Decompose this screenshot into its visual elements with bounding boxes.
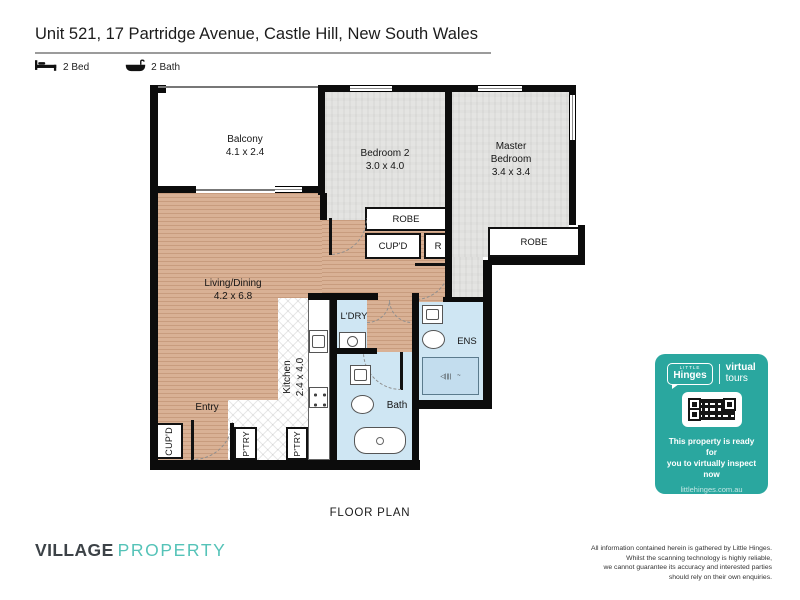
wall [150, 460, 420, 470]
cupboard-label: CUP'D [379, 241, 408, 252]
balcony-label: Balcony 4.1 x 2.4 [185, 133, 305, 159]
wall [392, 85, 478, 92]
balcony-railing [158, 86, 320, 88]
little-hinges-logo: LITTLE Hinges virtual tours [667, 363, 755, 385]
pantry-1: P'TRY [234, 427, 257, 460]
qr-finder [688, 408, 701, 421]
room-name: Balcony [185, 133, 305, 146]
bed-count-label: 2 Bed [63, 62, 89, 73]
agency-name-secondary: PROPERTY [118, 540, 227, 560]
room-dims: 4.1 x 2.4 [185, 146, 305, 159]
door-arc [193, 420, 233, 460]
disclaimer-line: All information contained herein is gath… [492, 544, 772, 554]
living-window [275, 186, 302, 193]
wall [569, 140, 576, 225]
brand-label: Hinges [673, 371, 706, 381]
bedroom2-label: Bedroom 2 3.0 x 4.0 [325, 147, 445, 173]
speech-bubble-icon: LITTLE Hinges [667, 363, 712, 385]
room-dims: 2.4 x 4.0 [294, 341, 307, 413]
door-arc [330, 218, 367, 255]
pantry-2: P'TRY [286, 427, 308, 460]
ensuite-shower: ◁||||~ [422, 357, 479, 395]
pantry-label: P'TRY [241, 431, 251, 457]
page-title: Unit 521, 17 Partridge Avenue, Castle Hi… [35, 25, 478, 44]
product-line: tours [726, 374, 756, 385]
title-divider [35, 52, 491, 54]
floor-plan: ROBE CUP'D R ROBE CUP'D P'TRY P'TRY ◁|||… [150, 85, 592, 470]
disclaimer-line: we cannot guarantee its accuracy and int… [492, 563, 772, 573]
bath-toilet [351, 395, 374, 414]
wall [483, 260, 492, 400]
room-dims: 4.2 x 6.8 [168, 290, 298, 303]
room-name: ENS [457, 336, 477, 347]
wall [330, 348, 377, 354]
balcony-slider [196, 189, 275, 191]
disclaimer: All information contained herein is gath… [492, 544, 772, 582]
wall [230, 423, 234, 460]
wall [308, 293, 378, 300]
website-label: littlehinges.com.au [680, 485, 742, 494]
room-name: L'DRY [341, 311, 368, 322]
disclaimer-line: Whilst the scanning technology is highly… [492, 554, 772, 564]
room-dims: 3.4 x 3.4 [455, 166, 567, 179]
ensuite-label: ENS [450, 336, 484, 349]
room-name: Bedroom 2 [325, 147, 445, 160]
r-label: R [435, 241, 442, 252]
qr-finder [723, 398, 736, 411]
entry-cupboard: CUP'D [155, 423, 183, 459]
laundry-door-arc [389, 300, 412, 323]
wall [150, 85, 158, 470]
wall [488, 257, 585, 265]
bed-feature: 2 Bed [35, 59, 89, 75]
wall [569, 85, 576, 95]
agency-name-primary: VILLAGE [35, 540, 114, 560]
room-name: Bedroom [455, 153, 567, 166]
tour-message: This property is ready for you to virtua… [655, 436, 768, 480]
wall [318, 85, 325, 195]
room-name: Master [455, 140, 567, 153]
master-robe: ROBE [488, 227, 580, 257]
disclaimer-line: should rely on their own enquiries. [492, 573, 772, 583]
floor-plan-caption: FLOOR PLAN [270, 507, 470, 519]
bathtub [354, 427, 406, 454]
wall [412, 293, 419, 470]
logo-divider [719, 364, 720, 384]
robe-label: ROBE [393, 214, 420, 225]
hall-carpet-floor [447, 257, 483, 300]
bath-count-label: 2 Bath [151, 62, 180, 73]
feature-summary: 2 Bed 2 Bath [35, 59, 180, 75]
entry-label: Entry [178, 401, 236, 414]
master-bedroom-label: Master Bedroom 3.4 x 3.4 [455, 140, 567, 180]
bath-icon [125, 59, 146, 75]
tour-message-line: you to virtually inspect now [664, 458, 759, 480]
wall [318, 85, 350, 92]
master-window [478, 85, 522, 92]
master-side-window [569, 95, 576, 140]
ensuite-toilet [422, 330, 445, 349]
product-label: virtual tours [726, 363, 756, 385]
hall-cupboard: CUP'D [365, 233, 421, 259]
tour-message-line: This property is ready for [664, 436, 759, 458]
ensuite-sink [422, 305, 443, 324]
cupboard-label: CUP'D [164, 427, 174, 456]
room-name: Bath [387, 400, 408, 411]
wall [320, 193, 327, 220]
shower-rail-icon: ~ [457, 373, 461, 379]
kitchen-label: Kitchen 2.4 x 4.0 [281, 341, 315, 413]
bed-icon [35, 59, 58, 75]
wall [150, 186, 196, 193]
wall [412, 400, 492, 409]
bedroom2-robe: ROBE [365, 207, 447, 231]
room-dims: 3.0 x 4.0 [325, 160, 445, 173]
qr-code-icon [682, 392, 742, 427]
bedroom2-window [350, 85, 392, 92]
room-name: Living/Dining [168, 277, 298, 290]
wall [443, 297, 483, 302]
shower-head-icon: ◁|||| [440, 373, 451, 380]
virtual-tour-card: LITTLE Hinges virtual tours This propert… [655, 354, 768, 494]
room-name: Kitchen [281, 341, 294, 413]
robe-label: ROBE [521, 237, 548, 248]
wall [522, 85, 576, 92]
bath-label: Bath [377, 399, 417, 412]
living-dining-label: Living/Dining 4.2 x 6.8 [168, 277, 298, 303]
room-name: Entry [195, 402, 218, 413]
laundry-label: L'DRY [333, 311, 375, 324]
bath-sink [350, 365, 371, 385]
agency-logo: VILLAGEPROPERTY [35, 540, 226, 561]
pantry-label: P'TRY [292, 431, 302, 457]
wall [445, 92, 452, 302]
bath-feature: 2 Bath [125, 59, 180, 75]
wall [302, 186, 322, 193]
